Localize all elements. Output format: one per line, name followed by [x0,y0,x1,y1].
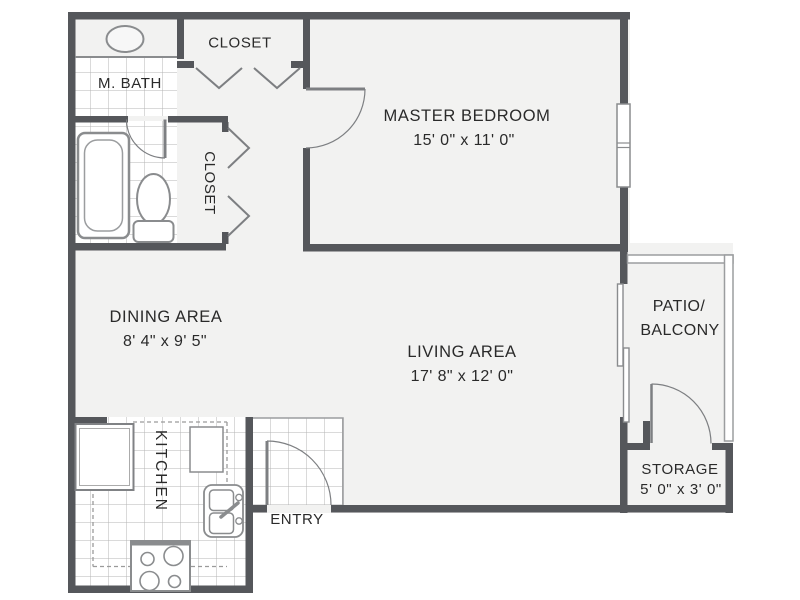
wall-top-closet-jamb-left [177,61,194,68]
wall-top-closet-jamb-right [291,61,308,68]
wall-living-east-lower [620,417,628,513]
wall-bath-mid-left [68,116,128,123]
dims-living-area: 17' 8" x 12' 0" [411,368,514,385]
sliding-door-panel-2 [624,348,630,422]
wall-side-closet-jamb-top [222,122,229,132]
toilet-tank-icon [134,221,174,242]
refrigerator-icon [76,424,134,490]
wall-patio-door-jamb [643,421,650,443]
patio-railing-right [725,255,734,441]
stove-burner-4 [169,576,181,588]
wall-storage-right [726,443,734,513]
wall-living-east-upper [620,244,628,284]
bedroom-window [617,104,630,187]
label-dining-area: DINING AREA [110,308,223,326]
stove-burner-3 [140,572,159,591]
wall-bedroom-left-upper [303,18,310,89]
label-closet-side: CLOSET [201,151,218,215]
floor-plan-drawing: M. BATH CLOSET CLOSET MASTER BEDROOM 15'… [0,0,800,600]
label-patio-line2: BALCONY [640,322,719,339]
dims-storage: 5' 0" x 3' 0" [640,481,722,498]
wall-bedroom-right-upper [620,12,628,105]
wall-entry-stub [246,505,268,513]
wall-side-closet-jamb-bottom [222,232,229,244]
patio-railing-top [628,255,734,263]
wall-bedroom-left-lower [303,148,310,251]
wall-vanity-closet-divider [177,18,184,59]
wall-bath-bottom [68,243,226,251]
dims-master-bedroom: 15' 0" x 11' 0" [413,132,514,149]
label-closet-top: CLOSET [208,35,272,52]
dims-dining-area: 8' 4" x 9' 5" [123,333,207,350]
wall-kitchen-top-stub [68,417,107,423]
toilet-bowl-icon [137,174,170,224]
sliding-door-panel-1 [618,284,624,366]
stove-burner-2 [164,547,183,566]
wall-south [331,505,733,513]
stove-back-edge [131,541,190,546]
label-patio-line1: PATIO/ [653,298,706,315]
label-kitchen: KITCHEN [152,430,169,512]
label-entry: ENTRY [270,511,324,528]
stove-burner-1 [141,553,154,566]
label-storage: STORAGE [641,461,718,478]
wall-top [68,12,630,20]
wall-storage-top-left [620,443,650,450]
wall-bedroom-bottom [303,244,628,252]
wall-left [68,12,76,593]
label-living-area: LIVING AREA [407,343,516,361]
wall-bath-mid-right [168,116,228,123]
vanity-sink-icon [107,26,144,52]
wall-bedroom-right-lower [620,187,628,252]
kitchen-counter-icon [190,427,223,472]
floor-plan-page: M. BATH CLOSET CLOSET MASTER BEDROOM 15'… [0,0,800,600]
label-master-bath: M. BATH [98,75,162,92]
label-master-bedroom: MASTER BEDROOM [384,107,551,125]
